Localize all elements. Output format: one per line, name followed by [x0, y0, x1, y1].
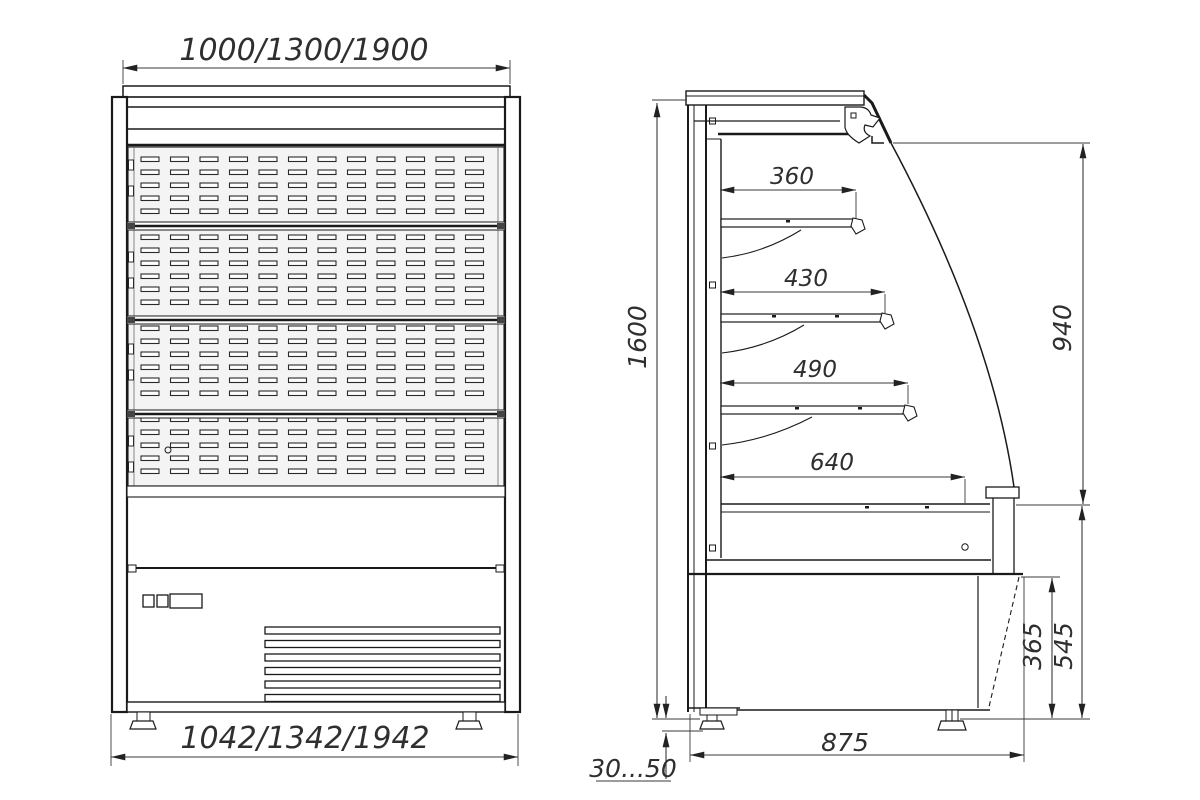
display-case-drawing: 1000/1300/1900 1042/1342/1942	[0, 0, 1200, 800]
side-bottom-deck	[706, 487, 1019, 574]
dim-label-shelf-430: 430	[784, 266, 828, 292]
dim-label-feet-30-50: 30...50	[589, 754, 676, 783]
dim-label-height: 1600	[623, 305, 652, 369]
front-kick-band	[127, 702, 505, 712]
curved-glass-front	[891, 143, 1014, 487]
technical-drawing-page: 1000/1300/1900 1042/1342/1942	[0, 0, 1200, 800]
dim-label-width-bottom: 1042/1342/1942	[180, 721, 429, 756]
dim-label-opening-940: 940	[1048, 304, 1077, 352]
dimension-shelf-490	[720, 383, 908, 404]
leveling-foot-front-left	[130, 712, 156, 729]
dim-label-shelf-360: 360	[770, 164, 814, 190]
dim-label-base-545: 545	[1049, 622, 1078, 670]
front-top-lid	[123, 86, 510, 97]
dimension-base-545	[960, 506, 1090, 719]
dim-label-shelf-490: 490	[793, 357, 837, 383]
side-shelf-1	[721, 218, 865, 258]
shelf-bar-3	[127, 410, 505, 418]
canopy-hinge-bracket	[845, 107, 880, 143]
dimension-shelf-430	[720, 292, 885, 313]
dim-label-shelf-640: 640	[810, 450, 854, 476]
dim-label-width-top: 1000/1300/1900	[179, 33, 428, 68]
side-shelf-2	[721, 313, 894, 353]
ventilation-grille	[265, 627, 500, 702]
control-switches	[143, 594, 202, 608]
side-back-wall	[688, 91, 721, 712]
shelf-bar-1	[127, 222, 505, 230]
side-view	[686, 91, 1023, 730]
leveling-foot-side-front	[938, 710, 966, 730]
front-canopy	[127, 97, 505, 145]
dimension-height-1600	[652, 100, 700, 719]
leveling-foot-side-back	[700, 715, 724, 729]
side-shelf-3	[721, 405, 917, 445]
shelf-bar-2	[127, 316, 505, 324]
back-wall-fasteners	[710, 118, 716, 551]
side-base	[688, 574, 1023, 715]
dimension-shelf-640	[720, 477, 965, 503]
front-view	[112, 86, 520, 729]
side-canopy	[686, 91, 891, 143]
front-bottom-band	[127, 486, 505, 572]
dim-label-base-365: 365	[1018, 622, 1047, 670]
dimension-shelf-360	[720, 190, 856, 218]
leveling-foot-front-right	[456, 712, 482, 729]
dim-label-depth-875: 875	[821, 728, 869, 757]
